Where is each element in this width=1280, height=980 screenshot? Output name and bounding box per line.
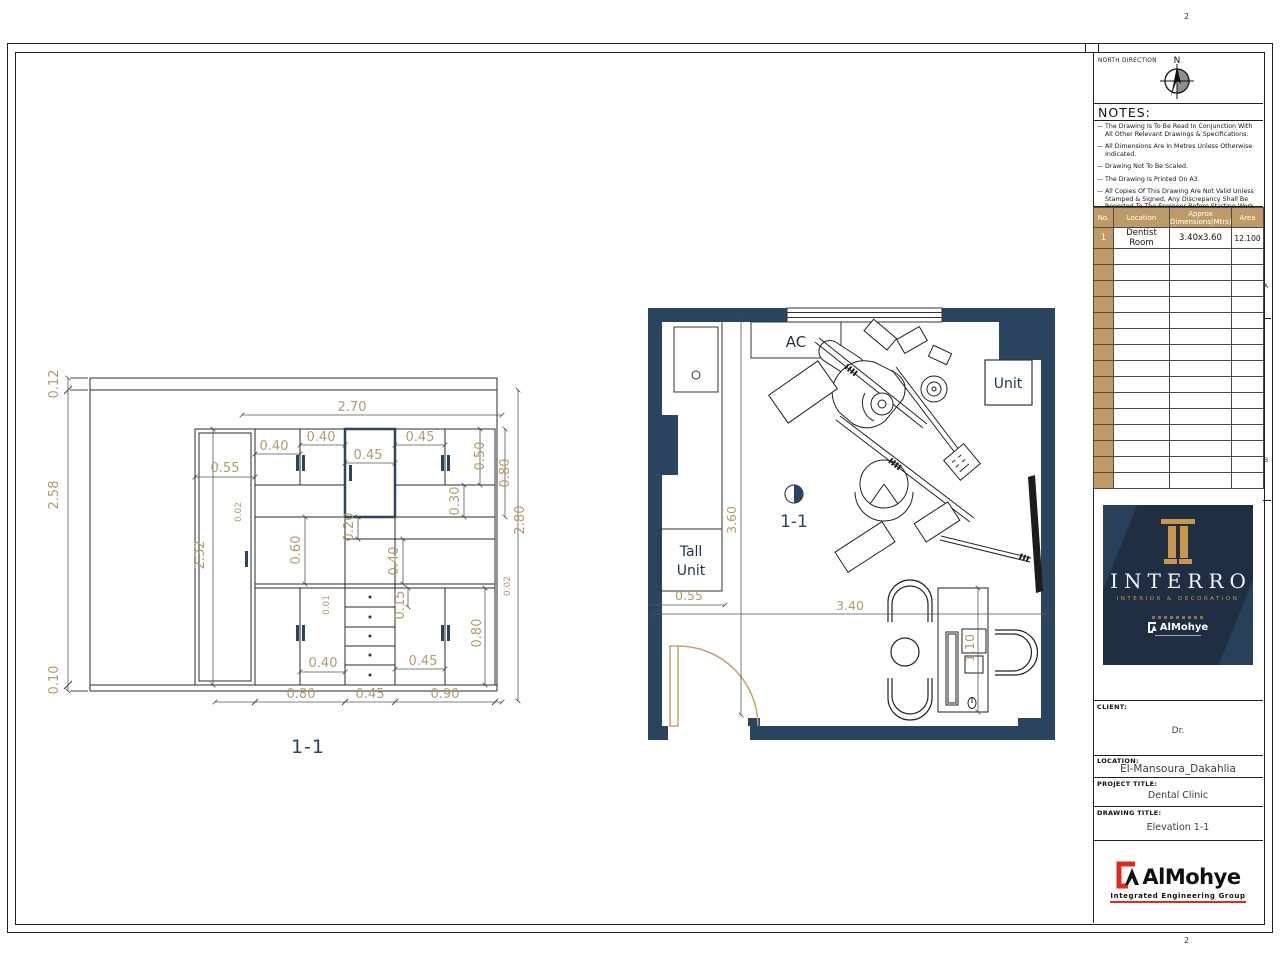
dim-text: 0.40 xyxy=(387,547,402,576)
tall-unit-label-2: Unit xyxy=(677,563,706,579)
empty-cell xyxy=(1094,441,1114,457)
dim-text: 0.02 xyxy=(503,576,513,596)
brand-subtitle: INTERIOR & DECORATION xyxy=(1103,596,1253,602)
empty-cell xyxy=(1094,345,1114,361)
drawing-sheet: 2 2 A B xyxy=(0,0,1280,980)
footer-logo-box: AlMohye Integrated Engineering Group xyxy=(1093,840,1263,923)
dim-text: 0.55 xyxy=(675,588,703,603)
dim-text: 0.12 xyxy=(47,370,62,399)
dim-text: 0.60 xyxy=(289,536,304,565)
dim-text: 2.58 xyxy=(47,481,62,510)
elevation-title: 1-1 xyxy=(291,736,325,758)
note-item: The Drawing Is To Be Read In Conjunction… xyxy=(1097,123,1259,138)
drawing-title-label: DRAWING TITLE: xyxy=(1097,809,1161,817)
dim-text: 0.15 xyxy=(393,591,408,620)
elevation-marker xyxy=(785,485,803,503)
stool xyxy=(855,460,913,521)
project-title-box: PROJECT TITLE: Dental Clinic xyxy=(1093,777,1263,807)
grid-mark-a: A xyxy=(1264,283,1268,290)
room-schedule: No. Location Approx Dimensions(Mtrs) Are… xyxy=(1093,207,1264,489)
dim-text: 0.20 xyxy=(342,513,357,542)
client-label: CLIENT: xyxy=(1097,703,1127,711)
dim-text: 0.01 xyxy=(322,595,332,615)
border-tick xyxy=(1085,43,1086,53)
project-title-label: PROJECT TITLE: xyxy=(1097,780,1157,788)
note-item: The Drawing Is Printed On A3. xyxy=(1097,176,1259,184)
tall-unit-label-1: Tall xyxy=(679,544,703,560)
dim-text: 0.40 xyxy=(309,656,338,671)
dim-text: 2.80 xyxy=(513,506,528,535)
empty-cell xyxy=(1094,297,1114,313)
empty-cell xyxy=(1094,425,1114,441)
elevation-drawing: 2.70 0.40 0.40 0.45 0.45 0.55 0.12 2.58 … xyxy=(40,355,560,775)
client-box: CLIENT: Dr. xyxy=(1093,700,1263,756)
location-value: El-Mansoura_Dakahlia xyxy=(1093,763,1263,775)
dim-text: 0.80 xyxy=(287,687,316,702)
ac-label: AC xyxy=(786,333,806,351)
drawer-knobs xyxy=(369,596,372,677)
dim-text: 0.40 xyxy=(260,439,289,454)
note-item: All Dimensions Are In Metres Unless Othe… xyxy=(1097,143,1259,158)
dim-text: 0.55 xyxy=(211,461,240,476)
empty-cell xyxy=(1094,249,1114,265)
dim-text: 0.80 xyxy=(470,619,485,648)
brand-mini-name: AlMohye xyxy=(1160,622,1208,633)
brand-name: INTERRO xyxy=(1109,569,1253,593)
cell-area: 12.100 xyxy=(1232,228,1264,249)
dim-text: 0.30 xyxy=(448,487,463,516)
col-header-area: Area xyxy=(1232,208,1264,228)
col-header-location: Location xyxy=(1114,208,1170,228)
cabinet-handles xyxy=(245,455,450,641)
dim-text: 2.70 xyxy=(338,400,367,415)
dim-text: 1.10 xyxy=(962,634,977,662)
door-opening xyxy=(668,726,750,740)
empty-cell xyxy=(1094,457,1114,473)
almohye-name: AlMohye xyxy=(1142,865,1240,889)
notes-list: The Drawing Is To Be Read In Conjunction… xyxy=(1093,120,1263,207)
cell-location: Dentist Room xyxy=(1114,228,1170,249)
grid-mark-top: 2 xyxy=(1184,12,1189,21)
dim-text: 0.45 xyxy=(409,654,438,669)
unit-label: Unit xyxy=(994,376,1023,392)
drawing-title-box: DRAWING TITLE: Elevation 1-1 xyxy=(1093,806,1263,841)
column-icon xyxy=(1158,519,1198,565)
door-swing xyxy=(670,646,758,726)
grid-mark-bottom: 2 xyxy=(1184,936,1189,945)
marker-label: 1-1 xyxy=(780,512,808,532)
north-label: NORTH DIRECTION xyxy=(1098,58,1157,64)
right-strip-divider xyxy=(1263,318,1271,319)
empty-cell xyxy=(1094,361,1114,377)
project-title-value: Dental Clinic xyxy=(1093,790,1263,801)
dim-text: 3.60 xyxy=(724,506,739,534)
brand-box: INTERRO INTERIOR & DECORATION AlMohye xyxy=(1093,483,1263,701)
dim-text: 3.40 xyxy=(836,598,864,613)
col-header-no: No. xyxy=(1094,208,1114,228)
dim-text: 0.45 xyxy=(354,448,383,463)
north-arrow-icon: N xyxy=(1149,53,1205,103)
dim-text: 0.50 xyxy=(473,442,488,471)
empty-cell xyxy=(1094,409,1114,425)
dim-text: 2.32 xyxy=(193,541,208,570)
location-box: LOCATION: El-Mansoura_Dakahlia xyxy=(1093,755,1263,778)
grid-mark-b: B xyxy=(1264,457,1268,464)
empty-cell xyxy=(1094,281,1114,297)
almohye-tagline: Integrated Engineering Group xyxy=(1110,892,1245,903)
floor-plan: AC Unit Tall Unit 1-1 0.55 3.40 3.60 1.1… xyxy=(640,300,1070,750)
elevation-dimensions: 2.70 0.40 0.40 0.45 0.45 0.55 0.12 2.58 … xyxy=(47,370,528,702)
brand-mini-underline xyxy=(1155,635,1201,636)
elevation-wall-lines xyxy=(90,378,497,691)
dim-text: 0.40 xyxy=(307,430,336,445)
tv xyxy=(1028,475,1043,593)
dim-text: 0.10 xyxy=(47,666,62,695)
drawing-title-value: Elevation 1-1 xyxy=(1093,822,1263,833)
client-value: Dr. xyxy=(1093,726,1263,736)
note-item: Drawing Not To Be Scaled. xyxy=(1097,163,1259,171)
cell-no: 1 xyxy=(1094,228,1114,249)
brand-mini-logo: AlMohye xyxy=(1103,622,1253,633)
dim-text: 0.90 xyxy=(431,687,460,702)
elevation-shelf-box xyxy=(345,429,395,517)
north-box: NORTH DIRECTION N xyxy=(1093,52,1263,104)
empty-cell xyxy=(1094,393,1114,409)
dim-text: 0.45 xyxy=(356,687,385,702)
cell-dims: 3.40x3.60 xyxy=(1170,228,1232,249)
mini-bracket-icon xyxy=(1148,622,1157,633)
dim-text: 0.45 xyxy=(406,430,435,445)
notes-header: NOTES: xyxy=(1093,103,1263,121)
almohye-bracket-icon xyxy=(1115,861,1141,889)
empty-cell xyxy=(1094,313,1114,329)
dim-text: 0.02 xyxy=(234,502,244,522)
empty-cell xyxy=(1094,329,1114,345)
right-strip-divider xyxy=(1263,500,1271,501)
brand-script-mark xyxy=(1152,616,1204,619)
dental-chair xyxy=(769,319,1031,572)
interro-logo: INTERRO INTERIOR & DECORATION AlMohye xyxy=(1103,505,1253,665)
window xyxy=(787,308,942,322)
empty-cell xyxy=(1094,265,1114,281)
col-header-dims: Approx Dimensions(Mtrs) xyxy=(1170,208,1232,228)
almohye-logo: AlMohye xyxy=(1115,861,1240,889)
dim-text: 0.80 xyxy=(498,459,513,488)
notes-title: NOTES: xyxy=(1098,105,1151,120)
empty-cell xyxy=(1094,377,1114,393)
